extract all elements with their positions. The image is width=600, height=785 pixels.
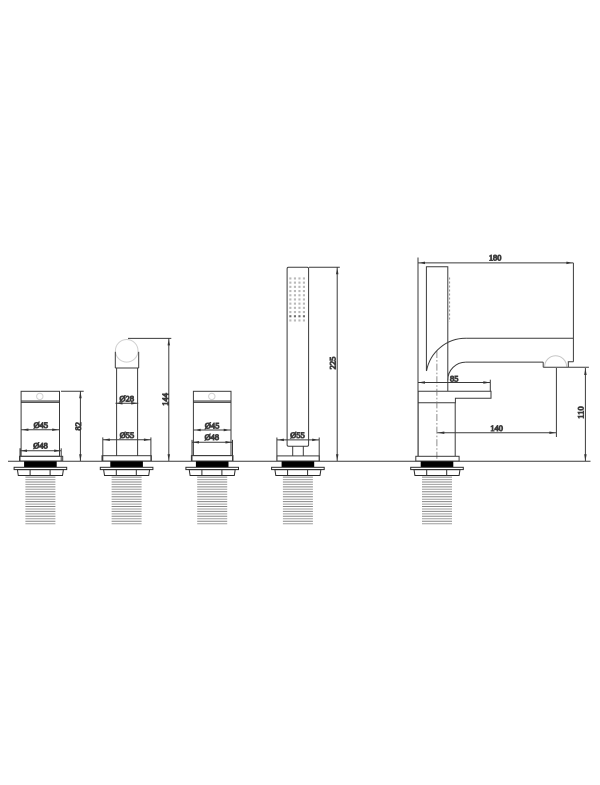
svg-text:Ø48: Ø48 <box>33 442 48 451</box>
svg-text:Ø55: Ø55 <box>290 431 305 440</box>
svg-text:180: 180 <box>489 253 502 262</box>
svg-text:140: 140 <box>490 424 503 433</box>
svg-text:Ø48: Ø48 <box>205 433 220 442</box>
svg-text:Ø45: Ø45 <box>205 421 220 430</box>
svg-text:144: 144 <box>161 392 170 405</box>
svg-text:110: 110 <box>577 406 586 418</box>
svg-text:Ø45: Ø45 <box>34 421 49 430</box>
svg-text:Ø55: Ø55 <box>120 431 135 440</box>
svg-text:82: 82 <box>74 422 83 431</box>
svg-text:225: 225 <box>329 357 338 370</box>
